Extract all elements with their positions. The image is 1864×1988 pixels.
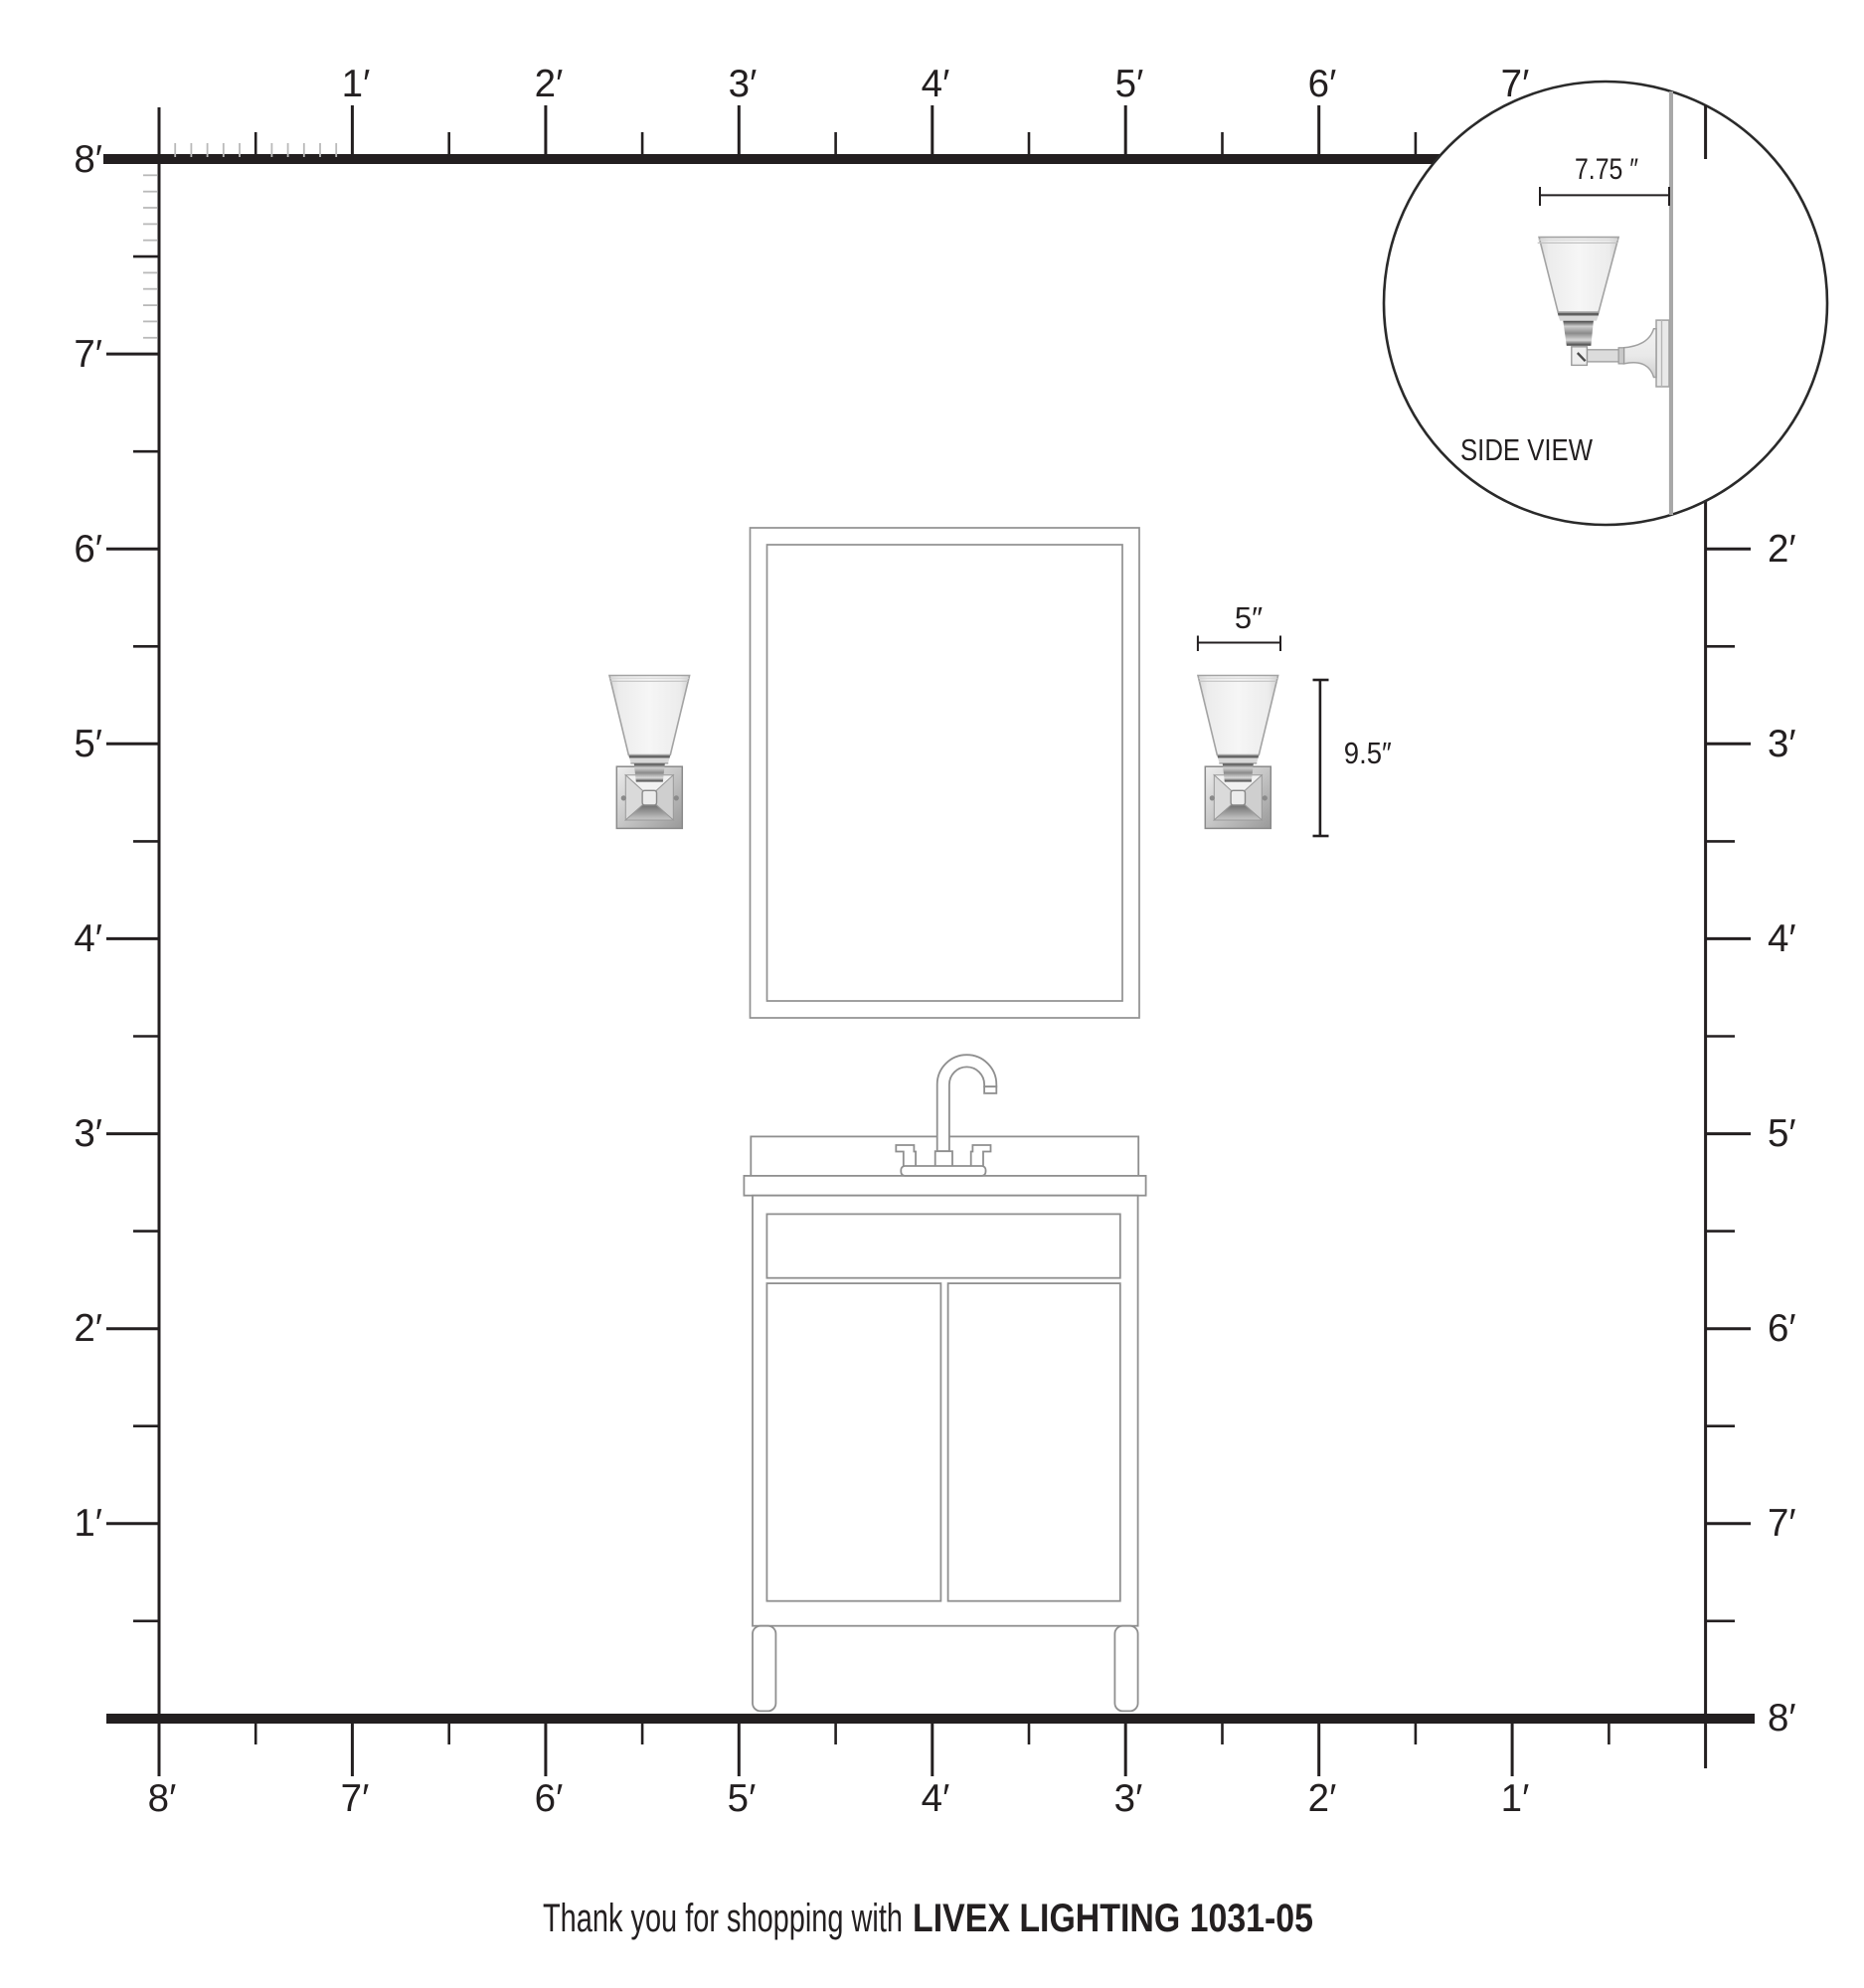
svg-text:8′: 8′	[1768, 1697, 1796, 1739]
svg-text:5′: 5′	[74, 723, 102, 765]
svg-text:4′: 4′	[74, 917, 102, 960]
svg-text:1′: 1′	[74, 1502, 102, 1545]
svg-text:5″: 5″	[1235, 600, 1263, 635]
svg-text:6′: 6′	[1308, 63, 1337, 105]
svg-text:3′: 3′	[1114, 1777, 1143, 1820]
svg-text:7′: 7′	[1501, 63, 1530, 105]
svg-text:3′: 3′	[74, 1112, 102, 1155]
svg-text:7.75 ″: 7.75 ″	[1575, 153, 1638, 186]
svg-text:7′: 7′	[74, 333, 102, 376]
svg-text:4′: 4′	[1768, 917, 1796, 960]
svg-text:Thank you for shopping with: Thank you for shopping with	[543, 1897, 903, 1940]
svg-text:6′: 6′	[535, 1777, 564, 1820]
svg-text:1′: 1′	[1501, 1777, 1530, 1820]
svg-text:7′: 7′	[1768, 1502, 1796, 1545]
svg-text:7′: 7′	[341, 1777, 370, 1820]
svg-text:5′: 5′	[1768, 1112, 1796, 1155]
svg-text:8′: 8′	[148, 1777, 177, 1820]
svg-text:SIDE VIEW: SIDE VIEW	[1460, 432, 1594, 467]
svg-text:9.5″: 9.5″	[1344, 736, 1392, 770]
svg-text:1′: 1′	[342, 63, 371, 105]
svg-text:6′: 6′	[1768, 1307, 1796, 1350]
svg-text:3′: 3′	[1768, 723, 1796, 765]
svg-text:3′: 3′	[729, 63, 758, 105]
svg-text:2′: 2′	[74, 1307, 102, 1350]
svg-text:2′: 2′	[535, 63, 564, 105]
svg-text:8′: 8′	[74, 138, 102, 181]
svg-text:4′: 4′	[922, 1777, 950, 1820]
svg-text:2′: 2′	[1308, 1777, 1337, 1820]
svg-text:6′: 6′	[74, 528, 102, 571]
svg-text:5′: 5′	[1115, 63, 1144, 105]
svg-text:4′: 4′	[922, 63, 950, 105]
svg-text:5′: 5′	[728, 1777, 757, 1820]
svg-text:2′: 2′	[1768, 528, 1796, 571]
svg-text:LIVEX LIGHTING 1031-05: LIVEX LIGHTING 1031-05	[913, 1897, 1313, 1940]
